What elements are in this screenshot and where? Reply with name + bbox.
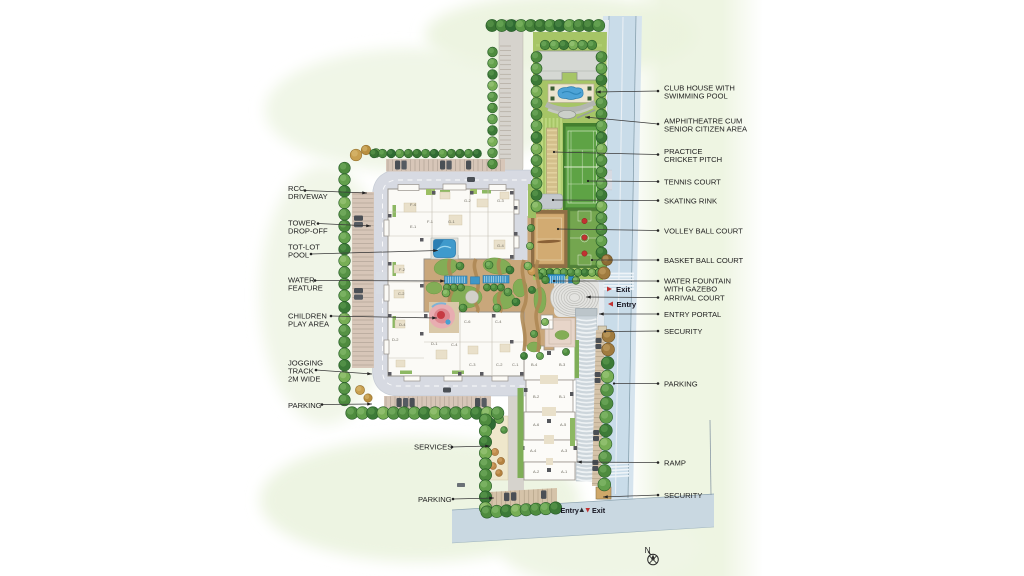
svg-text:G-3: G-3 bbox=[497, 198, 504, 203]
svg-text:D-1: D-1 bbox=[431, 341, 438, 346]
svg-text:Entry: Entry bbox=[561, 506, 579, 515]
svg-text:SKATING RINK: SKATING RINK bbox=[664, 197, 717, 206]
svg-text:G-4: G-4 bbox=[497, 243, 504, 248]
svg-text:F-4: F-4 bbox=[410, 202, 417, 207]
svg-text:C-4: C-4 bbox=[451, 342, 458, 347]
svg-text:FEATURE: FEATURE bbox=[288, 284, 323, 293]
svg-text:RAMP: RAMP bbox=[664, 459, 686, 468]
svg-text:C-6: C-6 bbox=[464, 319, 471, 324]
svg-text:B-1: B-1 bbox=[559, 394, 566, 399]
svg-text:PARKING: PARKING bbox=[288, 401, 322, 410]
svg-text:F-2: F-2 bbox=[399, 267, 406, 272]
svg-text:DRIVEWAY: DRIVEWAY bbox=[288, 192, 328, 201]
svg-text:D-4: D-4 bbox=[399, 322, 406, 327]
svg-text:SECURITY: SECURITY bbox=[664, 327, 702, 336]
svg-text:G-2: G-2 bbox=[464, 198, 471, 203]
svg-text:F-1: F-1 bbox=[427, 219, 434, 224]
svg-text:A-5: A-5 bbox=[560, 422, 567, 427]
svg-text:WITH GAZEBO: WITH GAZEBO bbox=[664, 285, 717, 294]
svg-text:SERVICES: SERVICES bbox=[414, 443, 452, 452]
svg-text:Exit: Exit bbox=[616, 285, 631, 294]
svg-text:A-4: A-4 bbox=[530, 448, 537, 453]
svg-text:Exit: Exit bbox=[592, 506, 606, 515]
svg-text:A-3: A-3 bbox=[561, 448, 568, 453]
svg-text:B-2: B-2 bbox=[533, 394, 540, 399]
svg-text:D-2: D-2 bbox=[392, 337, 399, 342]
svg-text:Entry: Entry bbox=[617, 300, 637, 309]
svg-text:TENNIS COURT: TENNIS COURT bbox=[664, 178, 721, 187]
svg-text:SWIMMING POOL: SWIMMING POOL bbox=[664, 92, 728, 101]
svg-text:BASKET BALL COURT: BASKET BALL COURT bbox=[664, 256, 744, 265]
svg-text:A-6: A-6 bbox=[533, 422, 540, 427]
svg-text:VOLLEY BALL COURT: VOLLEY BALL COURT bbox=[664, 227, 743, 236]
svg-text:C-2: C-2 bbox=[496, 362, 503, 367]
svg-text:CRICKET PITCH: CRICKET PITCH bbox=[664, 155, 722, 164]
svg-text:A-2: A-2 bbox=[533, 469, 540, 474]
svg-text:ENTRY PORTAL: ENTRY PORTAL bbox=[664, 310, 721, 319]
svg-text:PARKING: PARKING bbox=[418, 495, 452, 504]
svg-text:C-3: C-3 bbox=[469, 362, 476, 367]
svg-text:B-3: B-3 bbox=[559, 362, 566, 367]
svg-text:C-4: C-4 bbox=[495, 319, 502, 324]
svg-text:2M WIDE: 2M WIDE bbox=[288, 375, 321, 384]
svg-text:E-1: E-1 bbox=[410, 224, 417, 229]
svg-text:POOL: POOL bbox=[288, 251, 309, 260]
svg-text:C-2: C-2 bbox=[398, 291, 405, 296]
svg-text:SECURITY: SECURITY bbox=[664, 491, 702, 500]
svg-text:B-4: B-4 bbox=[531, 362, 538, 367]
svg-text:A-1: A-1 bbox=[561, 469, 568, 474]
svg-text:SENIOR CITIZEN AREA: SENIOR CITIZEN AREA bbox=[664, 125, 748, 134]
svg-text:ARRIVAL COURT: ARRIVAL COURT bbox=[664, 294, 725, 303]
svg-text:C-1: C-1 bbox=[512, 362, 519, 367]
svg-text:PLAY AREA: PLAY AREA bbox=[288, 320, 330, 329]
svg-text:G-1: G-1 bbox=[448, 219, 455, 224]
svg-text:DROP-OFF: DROP-OFF bbox=[288, 227, 328, 236]
svg-text:PARKING: PARKING bbox=[664, 380, 698, 389]
